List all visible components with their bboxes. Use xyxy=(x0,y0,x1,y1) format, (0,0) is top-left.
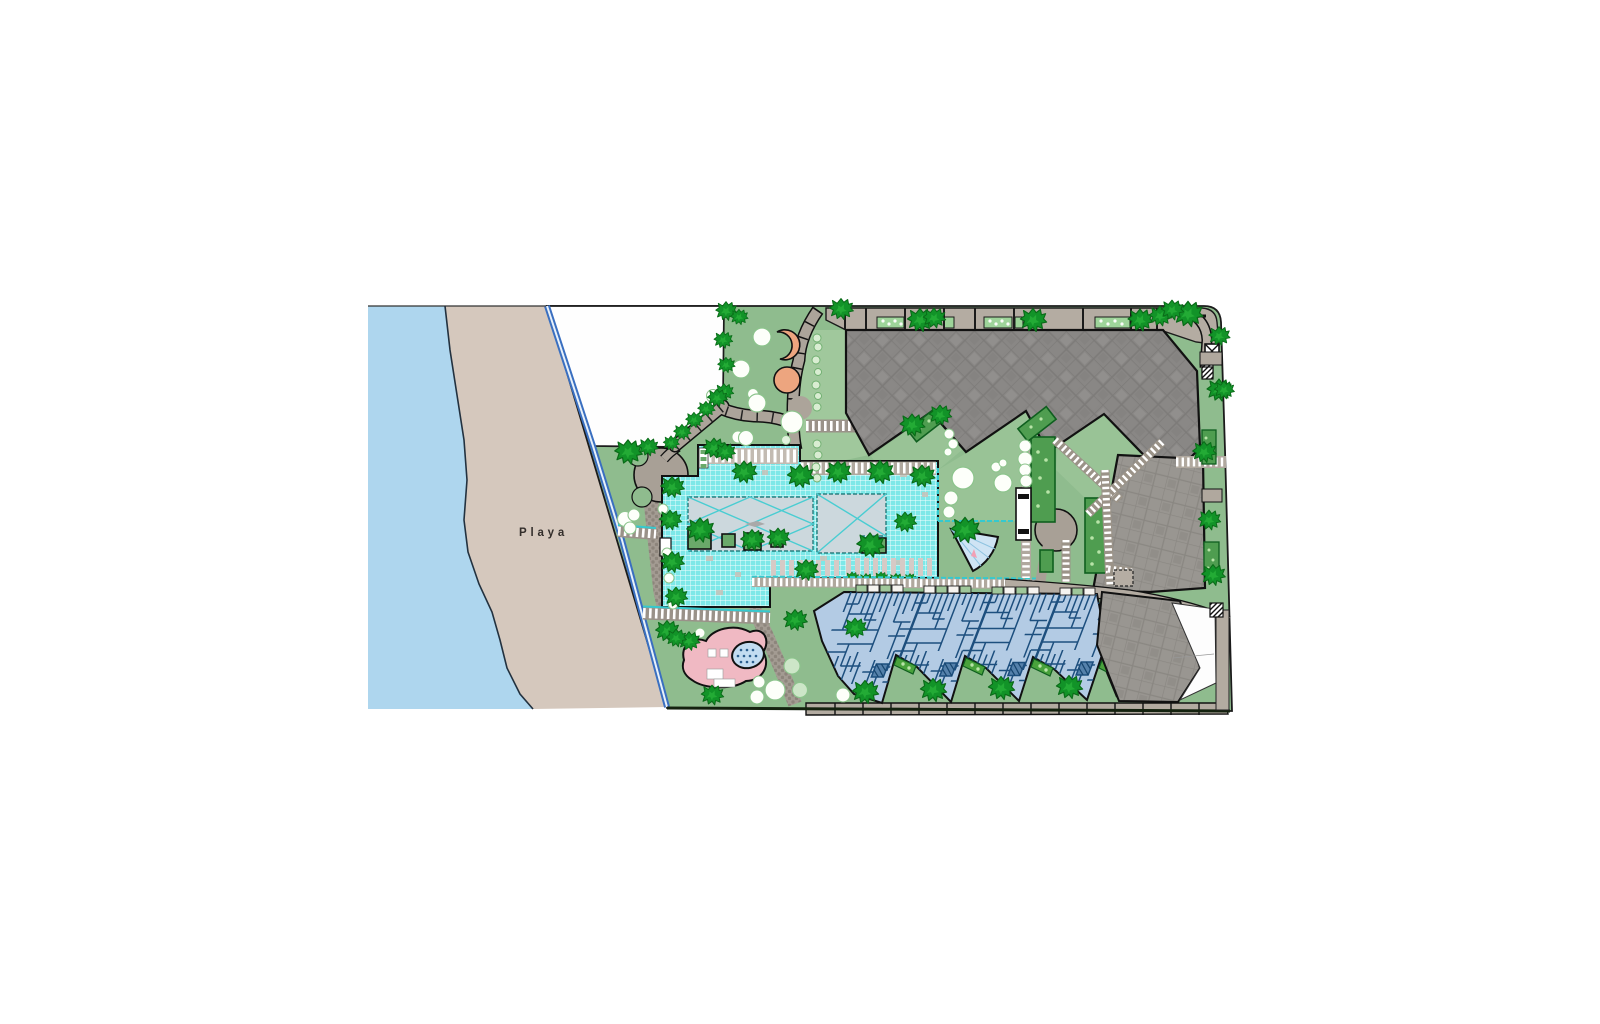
svg-text:Playa: Playa xyxy=(519,527,568,539)
